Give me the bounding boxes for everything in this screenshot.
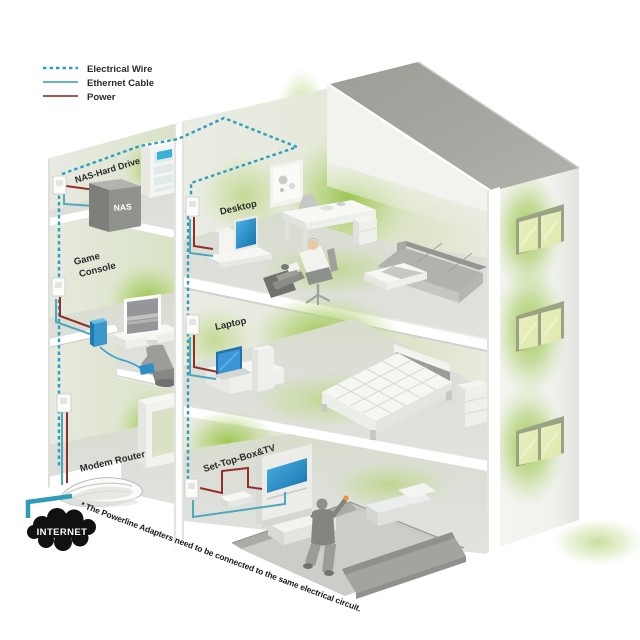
svg-text:Electrical Wire: Electrical Wire bbox=[87, 64, 152, 75]
svg-text:Power: Power bbox=[87, 92, 116, 103]
svg-text:NAS: NAS bbox=[113, 201, 132, 213]
svg-text:INTERNET: INTERNET bbox=[37, 527, 88, 538]
svg-text:Ethernet Cable: Ethernet Cable bbox=[87, 78, 154, 89]
